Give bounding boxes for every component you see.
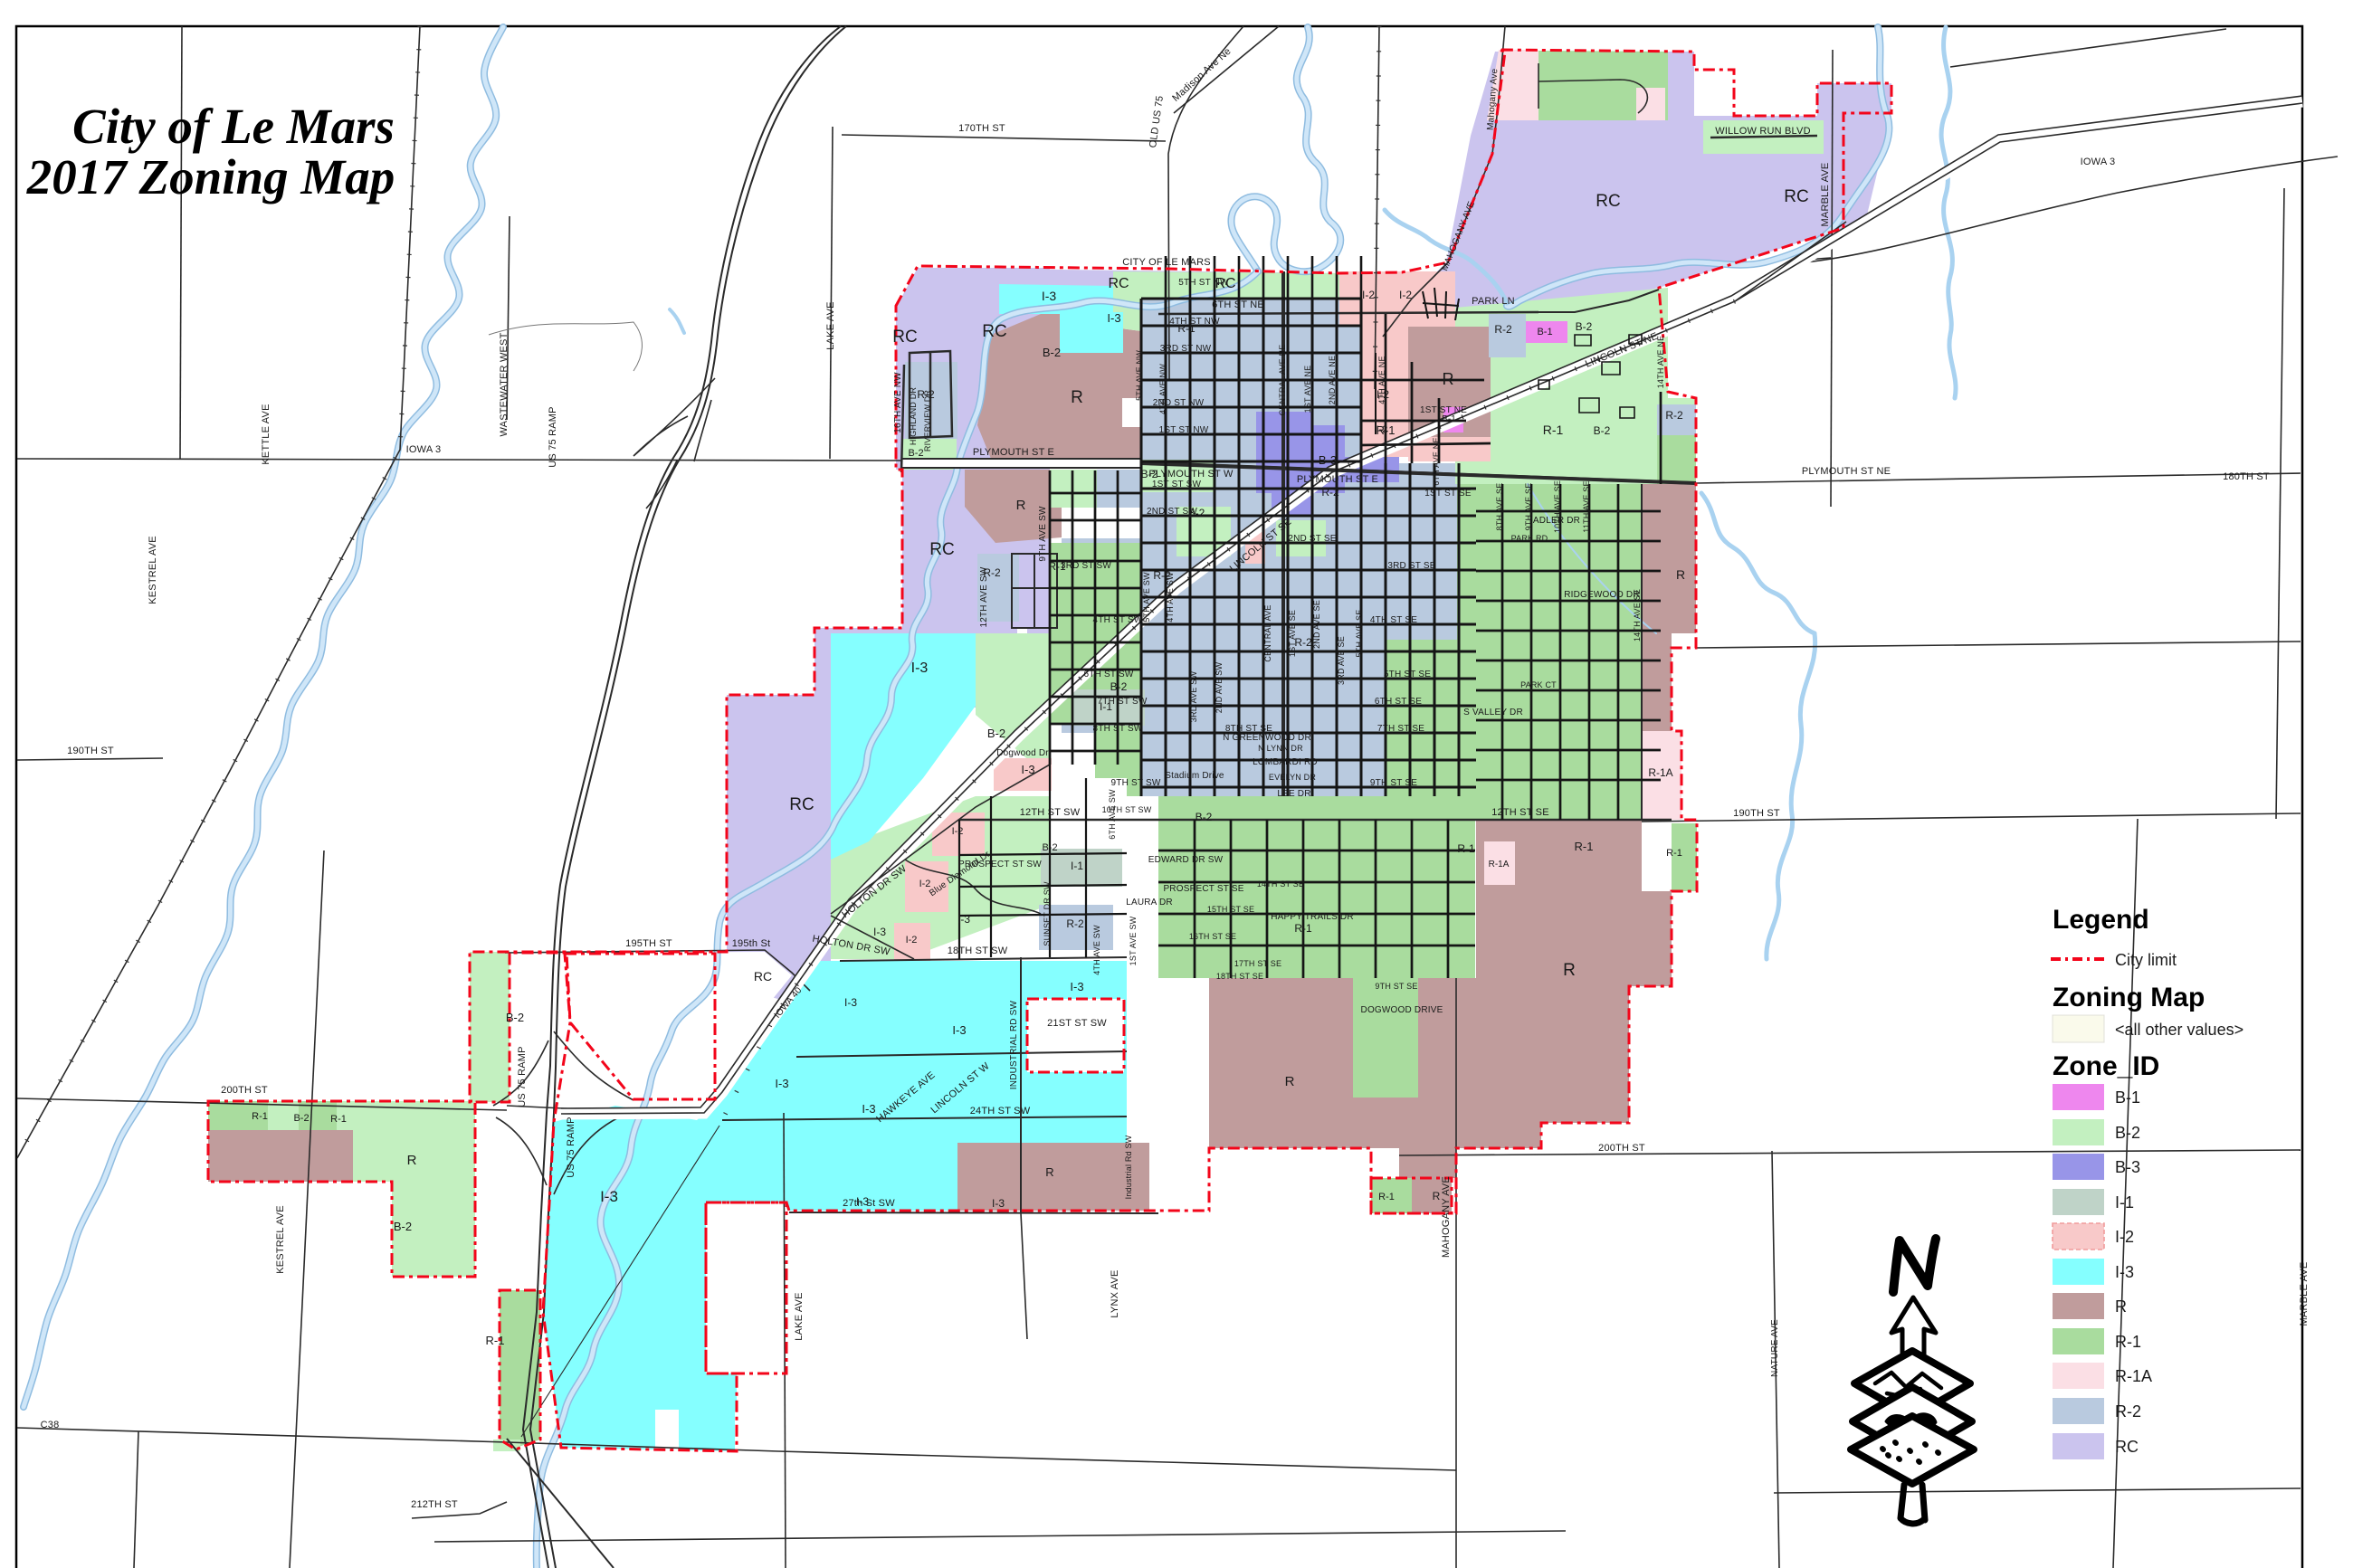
svg-text:B-3: B-3: [2115, 1158, 2140, 1176]
svg-text:CENTRAL AVE: CENTRAL AVE: [1263, 604, 1272, 661]
svg-text:PLYMOUTH ST E: PLYMOUTH ST E: [973, 447, 1054, 458]
svg-text:RC: RC: [1108, 276, 1129, 291]
svg-text:S VALLEY DR: S VALLEY DR: [1463, 708, 1523, 717]
svg-text:170TH ST: 170TH ST: [958, 123, 1005, 134]
svg-text:US 75 RAMP: US 75 RAMP: [566, 1117, 576, 1177]
svg-text:R: R: [1285, 1074, 1295, 1089]
svg-text:8TH AVE SE: 8TH AVE SE: [1495, 483, 1504, 531]
svg-text:I-3: I-3: [1042, 289, 1057, 303]
svg-text:RC: RC: [1596, 192, 1620, 211]
svg-text:B-2: B-2: [1043, 346, 1061, 359]
svg-text:PROSPECT ST SE: PROSPECT ST SE: [1163, 884, 1243, 894]
svg-text:IOWA 3: IOWA 3: [406, 444, 442, 455]
svg-text:HAPPY TRAILS DR: HAPPY TRAILS DR: [1271, 912, 1354, 922]
svg-text:12TH AVE SW: 12TH AVE SW: [979, 566, 989, 627]
svg-text:9TH ST SE: 9TH ST SE: [1370, 778, 1417, 788]
svg-text:R-1: R-1: [252, 1111, 268, 1122]
svg-text:B-1: B-1: [1537, 327, 1552, 337]
svg-text:US 75 RAMP: US 75 RAMP: [517, 1046, 528, 1107]
svg-text:R-1: R-1: [2115, 1333, 2141, 1351]
svg-text:5TH AVE SE: 5TH AVE SE: [1355, 610, 1364, 658]
svg-text:R-1: R-1: [1543, 423, 1564, 437]
svg-text:R-1: R-1: [1666, 848, 1682, 859]
svg-text:R: R: [1045, 1165, 1053, 1179]
svg-text:IOWA 3: IOWA 3: [2081, 157, 2116, 167]
svg-text:6TH ST SW: 6TH ST SW: [1084, 670, 1134, 679]
svg-text:R-1A: R-1A: [2115, 1367, 2152, 1385]
svg-text:3RD AVE SW: 3RD AVE SW: [1189, 671, 1198, 723]
svg-text:R-2: R-2: [1665, 409, 1683, 422]
svg-text:5TH ST NW: 5TH ST NW: [1178, 278, 1229, 288]
svg-text:INDUSTRIAL RD SW: INDUSTRIAL RD SW: [1009, 1000, 1019, 1089]
svg-text:195TH ST: 195TH ST: [625, 938, 672, 949]
svg-text:US 75 RAMP: US 75 RAMP: [548, 406, 558, 467]
svg-text:I-3: I-3: [600, 1188, 618, 1205]
svg-text:LOMBARDI RD: LOMBARDI RD: [1253, 757, 1318, 767]
svg-text:EDWARD DR SW: EDWARD DR SW: [1148, 855, 1224, 865]
svg-text:21ST ST SW: 21ST ST SW: [1047, 1018, 1107, 1029]
svg-text:5TH AVE NW: 5TH AVE NW: [1135, 350, 1144, 401]
svg-text:2ND AVE NE: 2ND AVE NE: [1328, 356, 1337, 404]
svg-text:RC: RC: [1784, 187, 1808, 206]
svg-text:<all other values>: <all other values>: [2115, 1021, 2243, 1039]
svg-text:2ND AVE SE: 2ND AVE SE: [1312, 600, 1321, 649]
svg-text:R-2: R-2: [1066, 917, 1084, 930]
svg-text:1ST AVE SE: 1ST AVE SE: [1288, 610, 1297, 657]
svg-text:7TH ST SE: 7TH ST SE: [1377, 724, 1424, 734]
svg-text:4TH ST NW: 4TH ST NW: [1169, 317, 1220, 327]
svg-text:2ND ST SE: 2ND ST SE: [1288, 534, 1336, 544]
svg-text:R: R: [1563, 961, 1576, 980]
svg-text:1ST ST NW: 1ST ST NW: [1159, 425, 1209, 435]
svg-text:RC: RC: [754, 969, 772, 984]
svg-text:I-2: I-2: [906, 935, 918, 946]
svg-text:4TH AVE SW: 4TH AVE SW: [1092, 925, 1101, 975]
svg-text:PLYMOUTH ST E: PLYMOUTH ST E: [1297, 474, 1378, 485]
svg-text:I-2: I-2: [1399, 289, 1412, 301]
svg-text:N LYNN DR: N LYNN DR: [1258, 744, 1303, 753]
svg-text:I-3: I-3: [957, 913, 970, 926]
svg-text:200TH ST: 200TH ST: [1598, 1143, 1645, 1154]
svg-text:B-2: B-2: [1042, 842, 1057, 853]
svg-text:N GREENWOOD DR: N GREENWOOD DR: [1223, 733, 1311, 743]
svg-text:I-3: I-3: [1070, 980, 1083, 993]
svg-text:Legend: Legend: [2053, 905, 2149, 935]
svg-text:Zoning Map: Zoning Map: [2053, 983, 2205, 1012]
svg-text:Industrial Rd SW: Industrial Rd SW: [1124, 1135, 1133, 1199]
svg-text:R: R: [1676, 567, 1685, 582]
svg-text:B-2: B-2: [394, 1220, 412, 1233]
svg-text:212TH ST: 212TH ST: [411, 1499, 458, 1510]
svg-text:8TH ST SE: 8TH ST SE: [1225, 724, 1272, 734]
svg-text:LYNX AVE: LYNX AVE: [1110, 1269, 1120, 1317]
svg-text:I-3: I-3: [911, 660, 929, 676]
svg-text:I-3: I-3: [952, 1023, 966, 1037]
svg-text:RC: RC: [2115, 1438, 2139, 1456]
svg-text:1ST AVE SW: 1ST AVE SW: [1129, 916, 1138, 965]
svg-text:11TH AVE SE: 11TH AVE SE: [1582, 480, 1591, 532]
svg-text:R-1: R-1: [330, 1114, 347, 1125]
svg-text:5TH ST SE: 5TH ST SE: [1384, 670, 1431, 679]
svg-text:B-2: B-2: [506, 1011, 524, 1024]
svg-text:200TH ST: 200TH ST: [221, 1085, 268, 1096]
svg-text:190TH ST: 190TH ST: [1733, 808, 1780, 819]
svg-text:14TH AVE NE: 14TH AVE NE: [1656, 336, 1665, 389]
svg-text:R-1: R-1: [1294, 922, 1312, 935]
svg-text:6TH AVE NE: 6TH AVE NE: [1432, 437, 1441, 485]
svg-text:195th St: 195th St: [732, 938, 771, 949]
svg-text:15TH ST SE: 15TH ST SE: [1207, 905, 1254, 914]
svg-text:3RD ST NW: 3RD ST NW: [1160, 344, 1212, 354]
svg-text:I-3: I-3: [2115, 1263, 2134, 1281]
svg-text:B-2: B-2: [2115, 1124, 2140, 1142]
svg-text:180TH ST: 180TH ST: [2223, 471, 2270, 482]
svg-text:R: R: [1016, 498, 1026, 513]
svg-text:10TH AVE SE: 10TH AVE SE: [1553, 480, 1562, 533]
svg-text:I-2: I-2: [1377, 424, 1388, 435]
svg-text:DOGWOOD DRIVE: DOGWOOD DRIVE: [1361, 1005, 1443, 1015]
svg-text:R-1: R-1: [1378, 1192, 1395, 1202]
svg-text:9TH AVE SE: 9TH AVE SE: [1524, 483, 1533, 531]
svg-text:KESTREL AVE: KESTREL AVE: [148, 536, 158, 604]
svg-text:I-3: I-3: [992, 1197, 1005, 1210]
svg-text:1ST AVE NE: 1ST AVE NE: [1303, 366, 1312, 413]
svg-text:R: R: [407, 1153, 417, 1168]
svg-text:PLYMOUTH ST W: PLYMOUTH ST W: [1148, 469, 1234, 480]
svg-text:9TH ST SE: 9TH ST SE: [1375, 982, 1417, 991]
svg-text:R-2: R-2: [1494, 323, 1512, 336]
svg-text:9TH ST SW: 9TH ST SW: [1111, 778, 1161, 788]
svg-text:1ST ST SE: 1ST ST SE: [1424, 489, 1472, 499]
svg-text:RC: RC: [929, 540, 954, 559]
svg-text:1ST ST SW: 1ST ST SW: [1152, 480, 1202, 489]
svg-text:R-2: R-2: [1321, 486, 1339, 499]
svg-text:3RD ST SE: 3RD ST SE: [1387, 561, 1435, 571]
svg-text:I-2: I-2: [919, 879, 931, 889]
svg-text:Zone_ID: Zone_ID: [2053, 1051, 2159, 1081]
svg-text:R: R: [2115, 1297, 2127, 1316]
svg-text:4TH AVE NE: 4TH AVE NE: [1377, 356, 1386, 404]
svg-text:18TH ST SW: 18TH ST SW: [948, 946, 1008, 956]
svg-text:I-2: I-2: [952, 826, 964, 837]
svg-text:R-1A: R-1A: [1489, 860, 1510, 870]
svg-text:14TH AVE SE: 14TH AVE SE: [1633, 589, 1642, 641]
svg-text:7TH ST SW: 7TH ST SW: [1098, 697, 1148, 707]
svg-text:12TH ST SW: 12TH ST SW: [1020, 807, 1081, 818]
svg-text:I-1: I-1: [2115, 1193, 2134, 1212]
svg-text:12TH ST SE: 12TH ST SE: [1491, 807, 1549, 818]
svg-text:I-3: I-3: [844, 996, 857, 1009]
svg-text:4TH AVE NW: 4TH AVE NW: [1158, 364, 1167, 414]
svg-text:R-1: R-1: [1575, 840, 1594, 853]
svg-text:City of Le Mars: City of Le Mars: [72, 99, 395, 154]
svg-text:8TH ST SW: 8TH ST SW: [1093, 724, 1143, 734]
svg-text:RC: RC: [789, 795, 814, 814]
svg-text:16TH AVE NW: 16TH AVE NW: [893, 372, 903, 433]
svg-text:R-2: R-2: [1294, 636, 1312, 649]
svg-text:R: R: [1443, 370, 1454, 388]
svg-text:B-2: B-2: [987, 727, 1005, 740]
svg-text:I-3: I-3: [862, 1102, 875, 1116]
svg-text:5TH AVE SW: 5TH AVE SW: [1142, 572, 1151, 622]
svg-text:B-3: B-3: [1319, 453, 1337, 467]
svg-text:3RD ST SW: 3RD ST SW: [1061, 561, 1111, 571]
svg-text:WASTEWATER WEST: WASTEWATER WEST: [499, 332, 510, 436]
svg-text:PLYMOUTH ST NE: PLYMOUTH ST NE: [1802, 466, 1891, 477]
svg-text:B-1: B-1: [2115, 1088, 2140, 1107]
svg-text:2ND ST SW: 2ND ST SW: [1147, 507, 1197, 517]
svg-text:LAURA DR: LAURA DR: [1126, 898, 1173, 908]
svg-text:R-1A: R-1A: [1648, 766, 1672, 779]
svg-text:R-1: R-1: [486, 1334, 505, 1347]
svg-text:B-1: B-1: [1442, 414, 1456, 424]
svg-text:24TH ST SW: 24TH ST SW: [970, 1106, 1031, 1117]
svg-text:3RD AVE SE: 3RD AVE SE: [1337, 636, 1346, 685]
svg-text:R: R: [1433, 1190, 1441, 1202]
svg-text:HIGHLAND DR: HIGHLAND DR: [909, 387, 918, 446]
svg-text:1ST ST NE: 1ST ST NE: [1420, 405, 1467, 415]
svg-text:B-2: B-2: [1576, 320, 1593, 333]
svg-text:EVELYN DR: EVELYN DR: [1269, 773, 1316, 782]
svg-text:I-2: I-2: [1362, 289, 1375, 301]
svg-text:LAKE AVE: LAKE AVE: [794, 1292, 805, 1340]
svg-text:9TH AVE SW: 9TH AVE SW: [1038, 506, 1048, 562]
svg-text:C38: C38: [41, 1420, 60, 1430]
svg-text:MARBLE AVE: MARBLE AVE: [2299, 1262, 2310, 1326]
svg-text:RIDGEWOOD DR: RIDGEWOOD DR: [1564, 590, 1640, 600]
svg-text:PARK CT: PARK CT: [1520, 680, 1557, 689]
svg-text:B-2: B-2: [1196, 811, 1213, 823]
svg-text:16TH ST SE: 16TH ST SE: [1189, 932, 1236, 941]
svg-text:I-3: I-3: [775, 1077, 788, 1090]
svg-text:B-2: B-2: [293, 1113, 309, 1124]
svg-text:2ND AVE SW: 2ND AVE SW: [1215, 662, 1224, 714]
svg-text:17TH ST SE: 17TH ST SE: [1234, 959, 1281, 968]
svg-text:MARBLE AVE: MARBLE AVE: [1820, 163, 1831, 227]
svg-text:NATURE AVE: NATURE AVE: [1770, 1319, 1780, 1377]
svg-text:RIVERVIEW DR: RIVERVIEW DR: [923, 390, 932, 452]
svg-text:18TH ST SE: 18TH ST SE: [1216, 972, 1263, 981]
svg-text:R: R: [1071, 388, 1083, 407]
svg-text:MAHOGANY AVE: MAHOGANY AVE: [1441, 1176, 1452, 1258]
svg-text:KESTREL AVE: KESTREL AVE: [275, 1205, 286, 1274]
svg-text:B-2: B-2: [1110, 680, 1128, 693]
svg-text:PARK RD: PARK RD: [1511, 534, 1548, 543]
svg-text:B-2: B-2: [1594, 424, 1611, 437]
svg-text:LEE DR: LEE DR: [1277, 789, 1310, 799]
svg-text:4TH AVE SW: 4TH AVE SW: [1166, 572, 1175, 622]
svg-text:Stadium Drive: Stadium Drive: [1165, 771, 1224, 781]
svg-text:R-2: R-2: [2115, 1402, 2141, 1421]
svg-text:R-1: R-1: [1457, 842, 1475, 855]
svg-text:14TH ST SE: 14TH ST SE: [1257, 879, 1304, 889]
svg-text:B-2: B-2: [908, 448, 923, 459]
svg-text:I-3: I-3: [1107, 311, 1120, 325]
svg-text:RC: RC: [892, 328, 917, 347]
svg-text:LAKE AVE: LAKE AVE: [825, 301, 836, 349]
svg-text:4TH ST SE: 4TH ST SE: [1370, 615, 1417, 625]
svg-text:Dogwood Dr: Dogwood Dr: [996, 748, 1049, 758]
svg-text:I-3: I-3: [1021, 763, 1034, 776]
svg-text:City limit: City limit: [2115, 951, 2177, 969]
svg-text:I-1: I-1: [1071, 860, 1083, 872]
svg-text:CENTRAL AVE NE: CENTRAL AVE NE: [1278, 345, 1287, 416]
svg-text:6TH ST NE: 6TH ST NE: [1212, 299, 1264, 310]
svg-text:190TH ST: 190TH ST: [67, 746, 114, 756]
svg-text:6TH AVE SW: 6TH AVE SW: [1108, 789, 1117, 840]
svg-text:27th St SW: 27th St SW: [843, 1198, 895, 1209]
svg-text:4TH ST SW: 4TH ST SW: [1093, 615, 1143, 625]
svg-text:WILLOW RUN BLVD: WILLOW RUN BLVD: [1715, 126, 1810, 137]
svg-text:KETTLE AVE: KETTLE AVE: [261, 404, 271, 464]
svg-text:I-2: I-2: [2115, 1228, 2134, 1246]
svg-text:RC: RC: [982, 322, 1006, 341]
svg-text:I-3: I-3: [873, 926, 886, 938]
svg-text:SUNSET DR SW: SUNSET DR SW: [1043, 881, 1052, 946]
svg-text:2017 Zoning Map: 2017 Zoning Map: [26, 149, 395, 204]
svg-text:6TH ST SE: 6TH ST SE: [1375, 697, 1422, 707]
svg-text:CITY OF LE MARS: CITY OF LE MARS: [1122, 257, 1211, 268]
svg-text:PARK LN: PARK LN: [1472, 296, 1515, 307]
